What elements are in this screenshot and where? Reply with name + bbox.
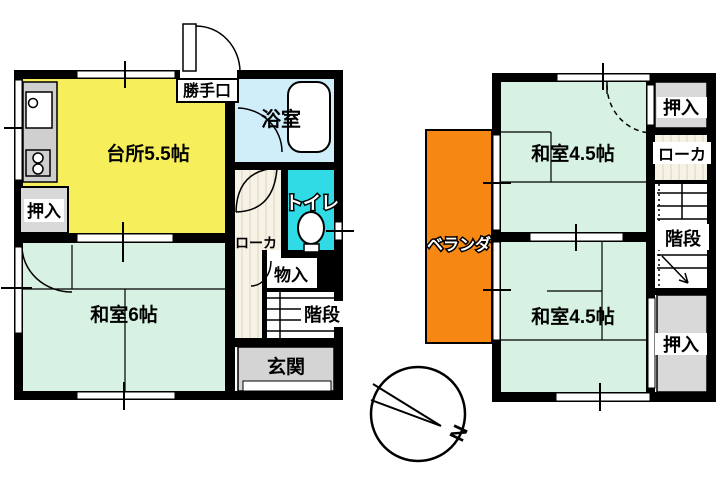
backdoor-arc (196, 26, 240, 72)
sliding-door-closet-lower (648, 298, 655, 388)
backdoor-panel (183, 24, 196, 71)
toilet-tank (304, 244, 319, 252)
floorplan-drawing: 勝手口 台所5.5帖 浴室 トイレ 押入 和室6帖 ローカ 物入 階段 玄関 (0, 0, 720, 491)
bath-label: 浴室 (261, 107, 301, 131)
toilet-label: トイレ (285, 193, 339, 213)
entrance-step (243, 381, 331, 391)
washitsu45-lower-label: 和室4.5帖 (531, 305, 614, 328)
sliding-door-closet-upper (647, 85, 654, 125)
compass: N (371, 367, 472, 461)
hallway-1f-label: ローカ (235, 235, 277, 251)
compass-circle (371, 367, 465, 461)
hallway-2f-label: ローカ (658, 146, 706, 164)
window-washitsu-left (15, 247, 22, 333)
closet-2f-lower-label: 押入 (663, 334, 699, 355)
window-2f-bottom (556, 393, 650, 401)
backdoor-label: 勝手口 (183, 81, 231, 100)
closet-2f-upper-label: 押入 (663, 97, 699, 118)
stairs-2f-label: 階段 (665, 228, 702, 249)
window-washitsu-bottom (77, 392, 175, 399)
washitsu45-upper-label: 和室4.5帖 (531, 142, 614, 165)
entrance-label: 玄関 (267, 355, 305, 378)
toilet-bowl (298, 212, 324, 244)
window-kitchen-left (15, 80, 22, 180)
kitchen-label: 台所5.5帖 (106, 142, 189, 165)
floorplan-page: 勝手口 台所5.5帖 浴室 トイレ 押入 和室6帖 ローカ 物入 階段 玄関 (0, 0, 720, 491)
stairs-arrow (662, 256, 688, 283)
stairs-1f-label: 階段 (304, 304, 341, 325)
storage-label: 物入 (274, 265, 308, 285)
burner-icon (33, 153, 43, 163)
faucet-icon (29, 99, 38, 108)
washitsu6-label: 和室6帖 (90, 303, 158, 326)
closet-1f-label: 押入 (27, 201, 61, 221)
burner-icon (33, 164, 43, 174)
kitchen-sink (26, 92, 52, 128)
sliding-door-kitchen-washitsu (77, 234, 173, 242)
veranda-label: ベランダ (427, 235, 491, 254)
